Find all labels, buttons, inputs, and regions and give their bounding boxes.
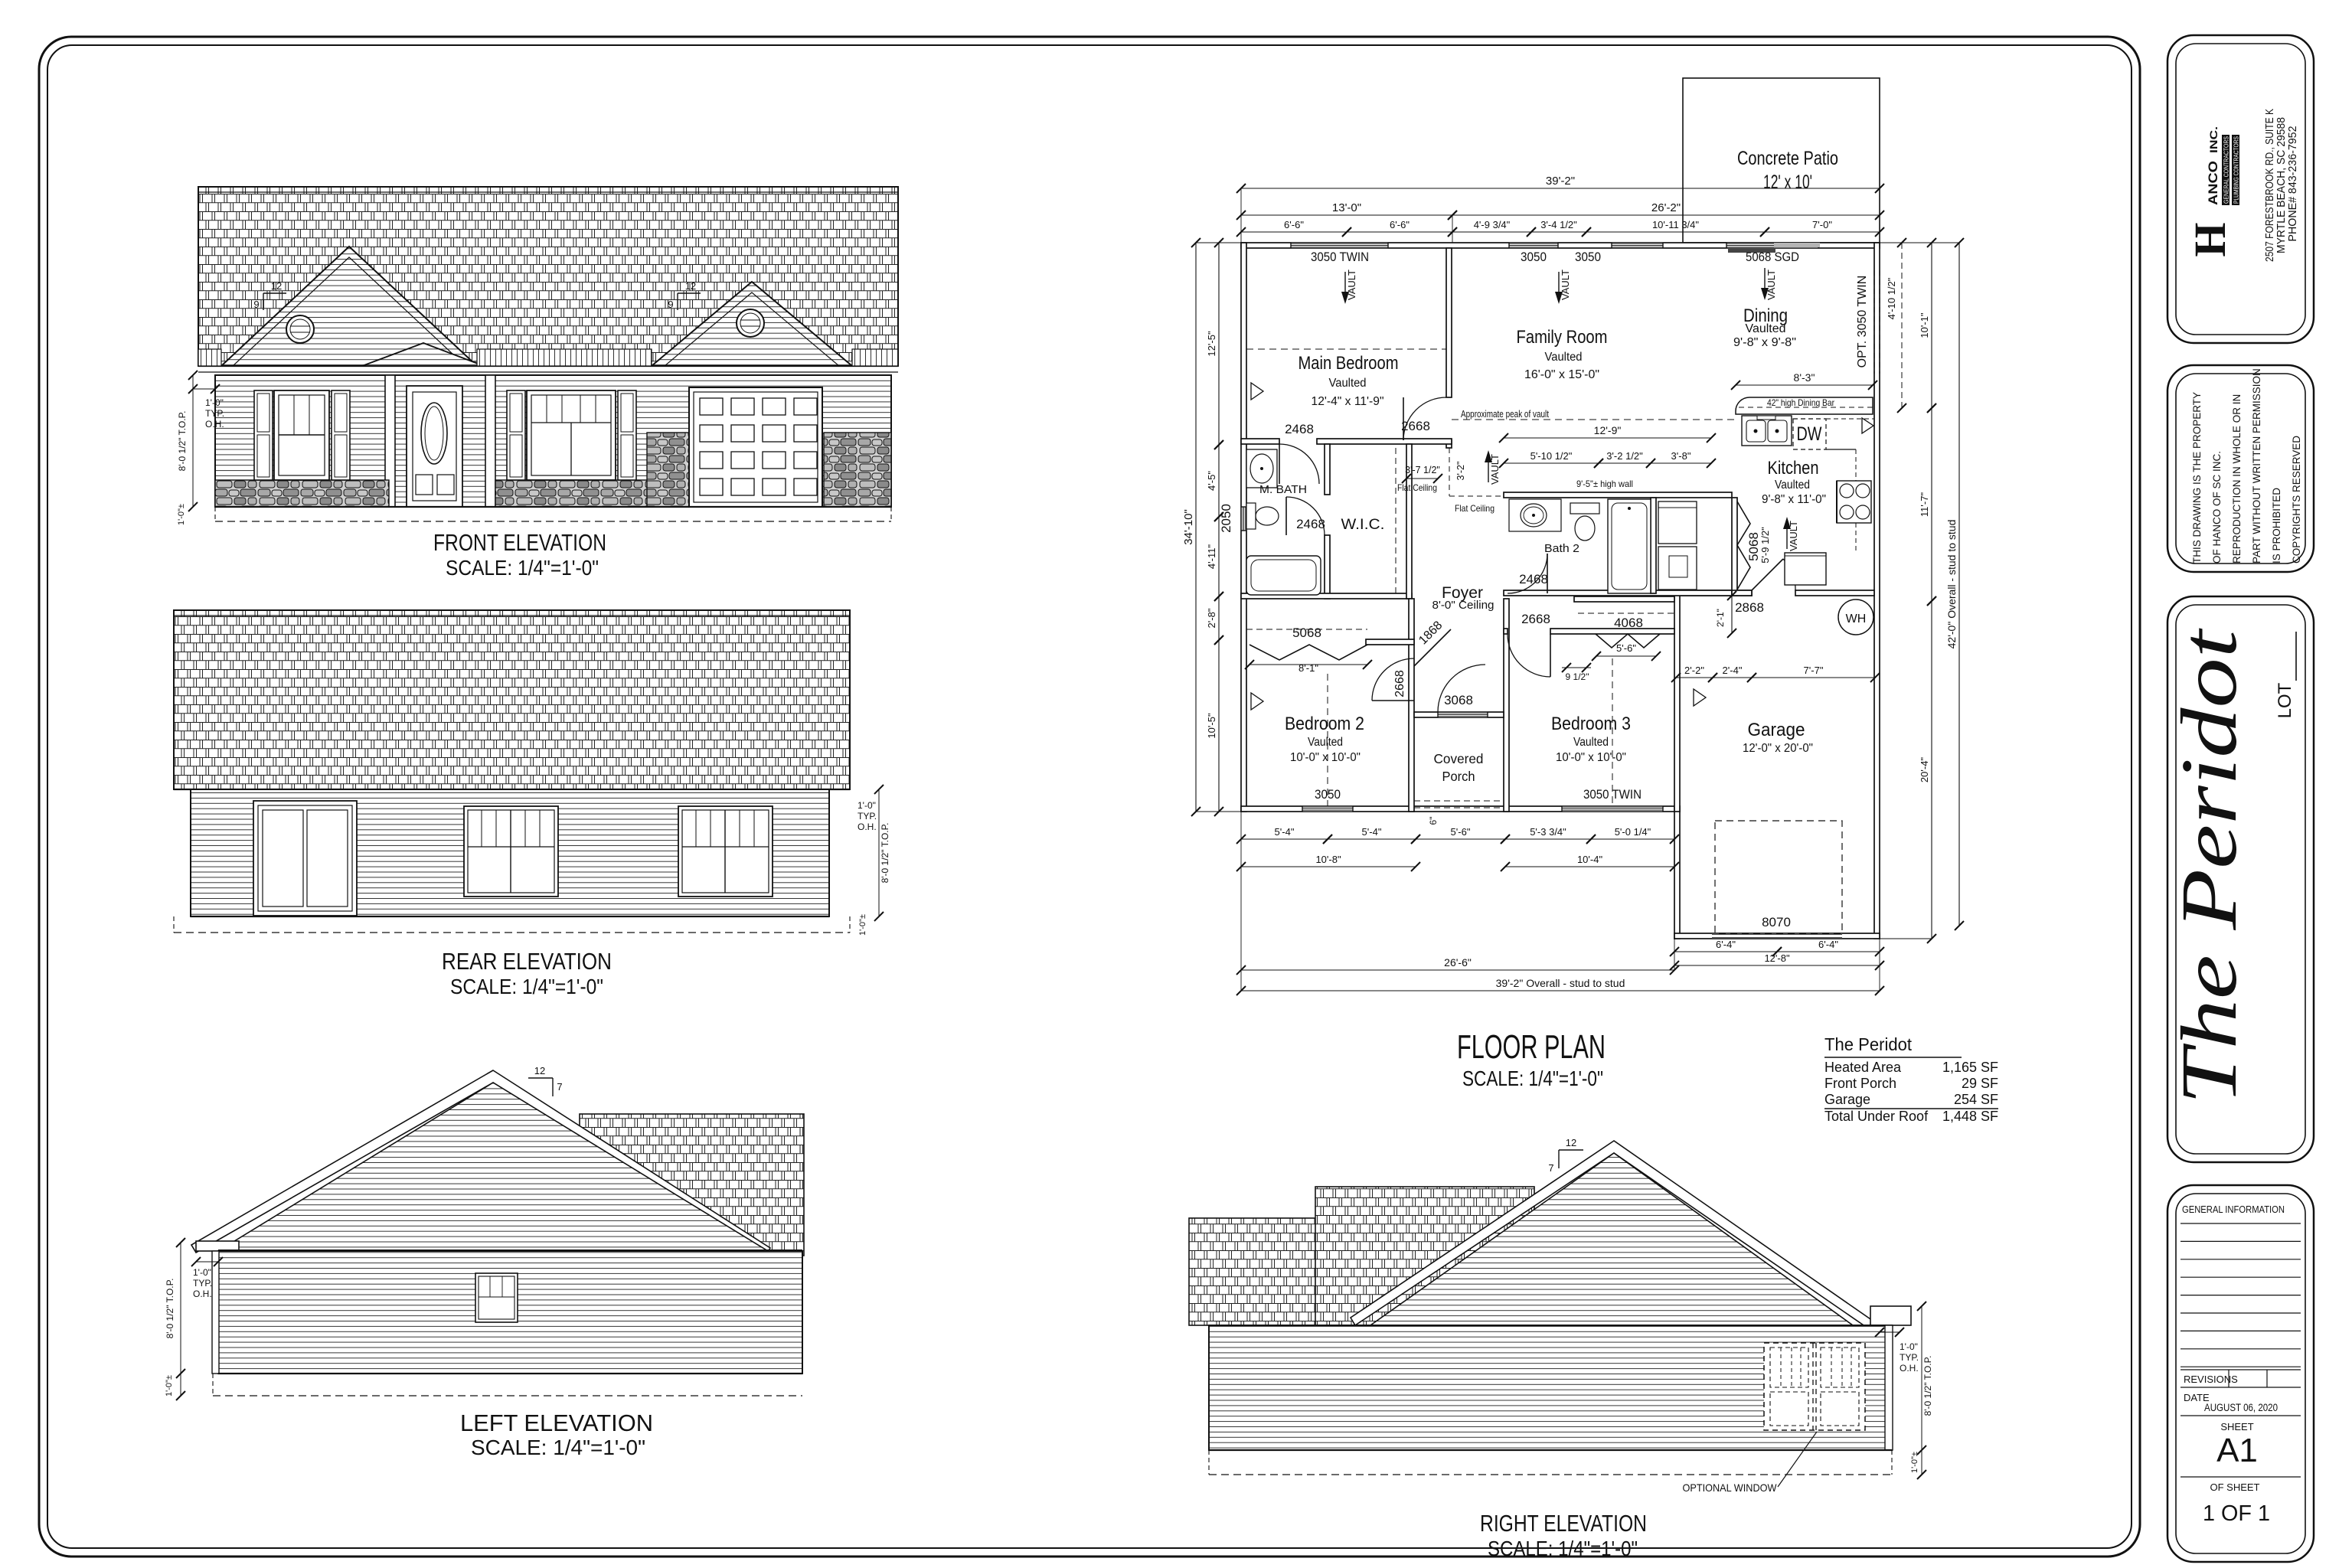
svg-text:Approximate peak of vault: Approximate peak of vault	[1461, 409, 1549, 420]
svg-text:PLUMBING CONTRACTORS: PLUMBING CONTRACTORS	[2233, 136, 2240, 204]
svg-text:REVISIONS: REVISIONS	[2184, 1374, 2238, 1385]
svg-text:Garage: Garage	[1824, 1092, 1870, 1107]
svg-text:5'-6": 5'-6"	[1616, 642, 1636, 654]
svg-text:Kitchen: Kitchen	[1768, 458, 1819, 479]
svg-text:12'-9": 12'-9"	[1594, 424, 1622, 436]
svg-text:1'-0": 1'-0"	[1900, 1341, 1918, 1352]
svg-text:Concrete Patio: Concrete Patio	[1737, 148, 1838, 169]
svg-text:GENERAL CONTRACTORS: GENERAL CONTRACTORS	[2223, 136, 2230, 204]
svg-text:9: 9	[668, 299, 673, 310]
svg-text:ANCO: ANCO	[2206, 161, 2220, 205]
svg-text:13'-0": 13'-0"	[1332, 201, 1361, 214]
svg-text:5'-9 1/2": 5'-9 1/2"	[1759, 527, 1771, 563]
svg-text:GENERAL INFORMATION: GENERAL INFORMATION	[2182, 1204, 2285, 1215]
svg-text:2668: 2668	[1393, 670, 1406, 697]
svg-text:1'-0": 1'-0"	[205, 397, 224, 408]
svg-text:39'-2" Overall - stud to stud: 39'-2" Overall - stud to stud	[1496, 977, 1625, 989]
svg-text:Vaulted: Vaulted	[1573, 736, 1609, 749]
svg-text:TYP.: TYP.	[1900, 1352, 1919, 1363]
svg-text:H: H	[2185, 222, 2235, 256]
svg-text:VAULT: VAULT	[1788, 521, 1799, 551]
svg-text:TYP.: TYP.	[193, 1278, 212, 1289]
svg-text:Vaulted: Vaulted	[1329, 377, 1367, 390]
svg-text:5'-6": 5'-6"	[1451, 826, 1471, 838]
svg-text:29 SF: 29 SF	[1962, 1076, 1998, 1091]
svg-text:5068 SGD: 5068 SGD	[1746, 250, 1799, 264]
svg-text:7'-7": 7'-7"	[1804, 665, 1824, 676]
svg-text:4'-11": 4'-11"	[1206, 544, 1217, 570]
svg-text:1'-0"±: 1'-0"±	[858, 914, 867, 936]
svg-text:1'-0": 1'-0"	[857, 800, 876, 811]
svg-text:3'-2": 3'-2"	[1455, 462, 1466, 481]
svg-text:REAR ELEVATION: REAR ELEVATION	[442, 948, 612, 975]
svg-text:6'-6": 6'-6"	[1284, 219, 1304, 230]
svg-text:4'-5": 4'-5"	[1206, 471, 1217, 491]
svg-text:2'-2": 2'-2"	[1684, 665, 1704, 676]
svg-text:5'-4": 5'-4"	[1275, 826, 1295, 838]
svg-text:3'-8": 3'-8"	[1671, 450, 1691, 462]
svg-text:Vaulted: Vaulted	[1308, 736, 1343, 749]
svg-text:REPRODUCTION IN WHOLE OR IN: REPRODUCTION IN WHOLE OR IN	[2231, 394, 2243, 563]
svg-text:Bath 2: Bath 2	[1544, 542, 1579, 555]
svg-text:3'-2 1/2": 3'-2 1/2"	[1606, 450, 1643, 462]
svg-text:AUGUST 06, 2020: AUGUST 06, 2020	[2204, 1402, 2278, 1413]
svg-text:7: 7	[557, 1081, 562, 1093]
svg-text:WH: WH	[1846, 612, 1867, 626]
svg-text:FLOOR PLAN: FLOOR PLAN	[1457, 1028, 1606, 1066]
svg-text:THIS DRAWING IS THE PROPERTY: THIS DRAWING IS THE PROPERTY	[2191, 392, 2203, 563]
svg-text:12'-0" x 20'-0": 12'-0" x 20'-0"	[1743, 742, 1813, 755]
svg-text:9'-8" x 9'-8": 9'-8" x 9'-8"	[1733, 336, 1796, 349]
svg-text:Family Room: Family Room	[1517, 327, 1608, 348]
svg-text:11'-7": 11'-7"	[1919, 492, 1930, 518]
svg-text:6'-6": 6'-6"	[1390, 219, 1410, 230]
svg-text:3050: 3050	[1521, 250, 1547, 264]
svg-text:8070: 8070	[1762, 915, 1791, 929]
svg-text:VAULT: VAULT	[1766, 269, 1777, 300]
svg-text:Heated Area: Heated Area	[1824, 1060, 1902, 1075]
svg-text:6'-4": 6'-4"	[1716, 939, 1736, 950]
svg-text:7'-0": 7'-0"	[1812, 219, 1832, 230]
svg-text:SHEET: SHEET	[2220, 1421, 2253, 1432]
svg-text:2468: 2468	[1296, 517, 1325, 531]
svg-text:Bedroom 3: Bedroom 3	[1551, 714, 1631, 734]
svg-text:COPYRIGHTS RESERVED: COPYRIGHTS RESERVED	[2291, 436, 2302, 563]
svg-text:26'-6": 26'-6"	[1444, 956, 1472, 969]
svg-text:20'-4": 20'-4"	[1919, 757, 1930, 783]
svg-text:VAULT: VAULT	[1489, 454, 1501, 485]
svg-text:Front Porch: Front Porch	[1824, 1076, 1896, 1091]
svg-text:2468: 2468	[1519, 572, 1548, 586]
svg-text:2468: 2468	[1285, 422, 1314, 436]
svg-text:10'-1": 10'-1"	[1919, 312, 1930, 338]
svg-text:9 1/2": 9 1/2"	[1566, 671, 1589, 682]
svg-text:1'-0": 1'-0"	[193, 1267, 211, 1278]
svg-text:Vaulted: Vaulted	[1545, 351, 1583, 364]
svg-text:12: 12	[1566, 1137, 1576, 1148]
svg-text:SCALE: 1/4"=1'-0": SCALE: 1/4"=1'-0"	[1488, 1537, 1638, 1560]
svg-text:Covered: Covered	[1434, 751, 1484, 766]
svg-text:12' x 10': 12' x 10'	[1763, 171, 1812, 193]
svg-text:8'-1": 8'-1"	[1298, 662, 1318, 674]
svg-text:TYP.: TYP.	[857, 811, 877, 822]
svg-text:2507 FORESTBROOK RD., SUITE K: 2507 FORESTBROOK RD., SUITE K	[2264, 109, 2276, 262]
svg-text:Flat Ceiling: Flat Ceiling	[1455, 503, 1494, 514]
svg-text:5'-4": 5'-4"	[1362, 826, 1382, 838]
svg-text:Garage: Garage	[1748, 720, 1805, 740]
svg-text:9: 9	[253, 299, 259, 310]
svg-text:42" high Dining Bar: 42" high Dining Bar	[1767, 397, 1834, 408]
svg-text:10'-0" x 10'-0": 10'-0" x 10'-0"	[1556, 751, 1626, 764]
svg-text:5'-0 1/4": 5'-0 1/4"	[1615, 826, 1651, 838]
svg-text:5068: 5068	[1292, 626, 1321, 640]
svg-text:O.H.: O.H.	[193, 1289, 212, 1299]
svg-text:8'-0 1/2" T.O.P.: 8'-0 1/2" T.O.P.	[880, 823, 890, 884]
svg-text:2'-4": 2'-4"	[1723, 665, 1743, 676]
svg-text:12'-5": 12'-5"	[1206, 331, 1217, 357]
svg-text:2'-1": 2'-1"	[1715, 609, 1726, 627]
svg-text:OF SHEET: OF SHEET	[2210, 1481, 2259, 1493]
svg-text:Vaulted: Vaulted	[1746, 322, 1786, 335]
svg-text:OPT. 3050 TWIN: OPT. 3050 TWIN	[1856, 276, 1869, 368]
svg-text:MYRTLE BEACH, SC 29588: MYRTLE BEACH, SC 29588	[2275, 117, 2288, 253]
svg-text:Flat Ceiling: Flat Ceiling	[1397, 482, 1437, 493]
svg-text:DW: DW	[1797, 423, 1822, 445]
svg-text:4068: 4068	[1614, 616, 1643, 630]
svg-text:9'-8" x 11'-0": 9'-8" x 11'-0"	[1762, 493, 1826, 506]
svg-text:Bedroom 2: Bedroom 2	[1285, 714, 1364, 734]
svg-text:5'-10 1/2": 5'-10 1/2"	[1530, 450, 1573, 462]
svg-text:Total Under Roof: Total Under Roof	[1824, 1109, 1929, 1124]
svg-text:3050: 3050	[1575, 250, 1601, 264]
svg-text:1'-0"±: 1'-0"±	[165, 1375, 174, 1396]
svg-text:VAULT: VAULT	[1560, 269, 1571, 300]
svg-text:1 OF 1: 1 OF 1	[2203, 1501, 2270, 1526]
svg-text:The Peridot: The Peridot	[1824, 1034, 1913, 1054]
svg-text:8'-3": 8'-3"	[1794, 371, 1815, 384]
svg-text:3'-7 1/2": 3'-7 1/2"	[1405, 465, 1440, 475]
svg-text:2868: 2868	[1735, 600, 1764, 615]
svg-text:Vaulted: Vaulted	[1775, 479, 1810, 492]
svg-text:LOT: LOT	[2275, 682, 2295, 718]
svg-text:2668: 2668	[1401, 419, 1430, 433]
svg-text:10'-8": 10'-8"	[1315, 854, 1341, 865]
svg-text:8'-0" Ceiling: 8'-0" Ceiling	[1432, 599, 1494, 612]
svg-text:O.H.: O.H.	[205, 419, 224, 430]
svg-text:10'-5": 10'-5"	[1206, 713, 1217, 739]
svg-text:4'-9 3/4": 4'-9 3/4"	[1474, 219, 1511, 230]
svg-text:12'-8": 12'-8"	[1764, 952, 1790, 964]
svg-text:8'-0 1/2" T.O.P.: 8'-0 1/2" T.O.P.	[1922, 1356, 1933, 1416]
svg-text:Porch: Porch	[1442, 769, 1475, 784]
svg-text:2'-8": 2'-8"	[1206, 608, 1217, 628]
svg-text:16'-0" x 15'-0": 16'-0" x 15'-0"	[1524, 368, 1599, 381]
svg-text:12: 12	[534, 1065, 545, 1076]
svg-text:OF HANCO OF SC INC.: OF HANCO OF SC INC.	[2211, 451, 2223, 563]
svg-text:26'-2": 26'-2"	[1651, 201, 1681, 214]
svg-text:39'-2": 39'-2"	[1546, 175, 1575, 188]
svg-text:O.H.: O.H.	[857, 822, 877, 832]
svg-text:10'-4": 10'-4"	[1577, 854, 1603, 865]
svg-text:LEFT ELEVATION: LEFT ELEVATION	[460, 1410, 653, 1436]
svg-text:M. BATH: M. BATH	[1259, 484, 1307, 496]
svg-text:1'-0"±: 1'-0"±	[1910, 1452, 1919, 1473]
svg-text:42'-0" Overall - stud to stud: 42'-0" Overall - stud to stud	[1945, 520, 1958, 649]
svg-text:9'-5"± high wall: 9'-5"± high wall	[1576, 479, 1633, 489]
svg-text:8'-0 1/2" T.O.P.: 8'-0 1/2" T.O.P.	[177, 411, 188, 472]
svg-text:5'-3 3/4": 5'-3 3/4"	[1530, 826, 1566, 838]
svg-text:3068: 3068	[1444, 693, 1473, 707]
svg-text:34'-10": 34'-10"	[1182, 509, 1195, 545]
svg-text:The Peridot: The Peridot	[2165, 628, 2253, 1105]
svg-text:PART WITHOUT WRITTEN PERMISSIO: PART WITHOUT WRITTEN PERMISSION	[2251, 368, 2262, 563]
svg-text:4'-10 1/2": 4'-10 1/2"	[1886, 277, 1897, 319]
svg-text:VAULT: VAULT	[1346, 269, 1357, 300]
svg-text:3'-4 1/2": 3'-4 1/2"	[1540, 219, 1577, 230]
svg-text:Main Bedroom: Main Bedroom	[1298, 353, 1399, 374]
svg-text:W.I.C.: W.I.C.	[1341, 517, 1385, 533]
svg-text:SCALE: 1/4"=1'-0": SCALE: 1/4"=1'-0"	[450, 975, 603, 998]
svg-text:2050: 2050	[1219, 504, 1233, 533]
svg-text:6'-4": 6'-4"	[1818, 939, 1838, 950]
svg-text:3050 TWIN: 3050 TWIN	[1311, 250, 1369, 264]
svg-text:7: 7	[1548, 1162, 1553, 1174]
svg-text:INC.: INC.	[2207, 126, 2220, 153]
svg-text:RIGHT ELEVATION: RIGHT ELEVATION	[1480, 1510, 1647, 1537]
svg-text:SCALE: 1/4"=1'-0": SCALE: 1/4"=1'-0"	[471, 1436, 645, 1459]
svg-text:12: 12	[271, 280, 282, 292]
svg-text:12: 12	[685, 280, 696, 292]
svg-text:254 SF: 254 SF	[1954, 1092, 1998, 1107]
svg-text:A1: A1	[2216, 1432, 2258, 1469]
svg-text:SCALE: 1/4"=1'-0": SCALE: 1/4"=1'-0"	[446, 556, 599, 580]
svg-text:FRONT ELEVATION: FRONT ELEVATION	[433, 529, 606, 556]
svg-text:10'-11 3/4": 10'-11 3/4"	[1652, 219, 1699, 230]
svg-text:IS PROHIBITED: IS PROHIBITED	[2271, 488, 2282, 563]
svg-text:1'-0"±: 1'-0"±	[177, 504, 186, 525]
svg-text:10'-0" x 10'-0": 10'-0" x 10'-0"	[1290, 751, 1361, 764]
svg-text:PHONE# 843-236-7952: PHONE# 843-236-7952	[2287, 126, 2299, 242]
svg-text:2668: 2668	[1521, 612, 1550, 626]
svg-text:O.H.: O.H.	[1900, 1363, 1919, 1374]
svg-text:1,165 SF: 1,165 SF	[1942, 1060, 1998, 1075]
svg-text:6": 6"	[1428, 817, 1439, 825]
svg-text:1,448 SF: 1,448 SF	[1942, 1109, 1998, 1124]
svg-text:12'-4" x 11'-9": 12'-4" x 11'-9"	[1312, 395, 1384, 408]
svg-text:OPTIONAL WINDOW: OPTIONAL WINDOW	[1683, 1481, 1778, 1494]
svg-text:SCALE: 1/4"=1'-0": SCALE: 1/4"=1'-0"	[1462, 1067, 1603, 1090]
svg-text:TYP.: TYP.	[205, 408, 224, 419]
svg-text:8'-0 1/2" T.O.P.: 8'-0 1/2" T.O.P.	[165, 1279, 175, 1339]
